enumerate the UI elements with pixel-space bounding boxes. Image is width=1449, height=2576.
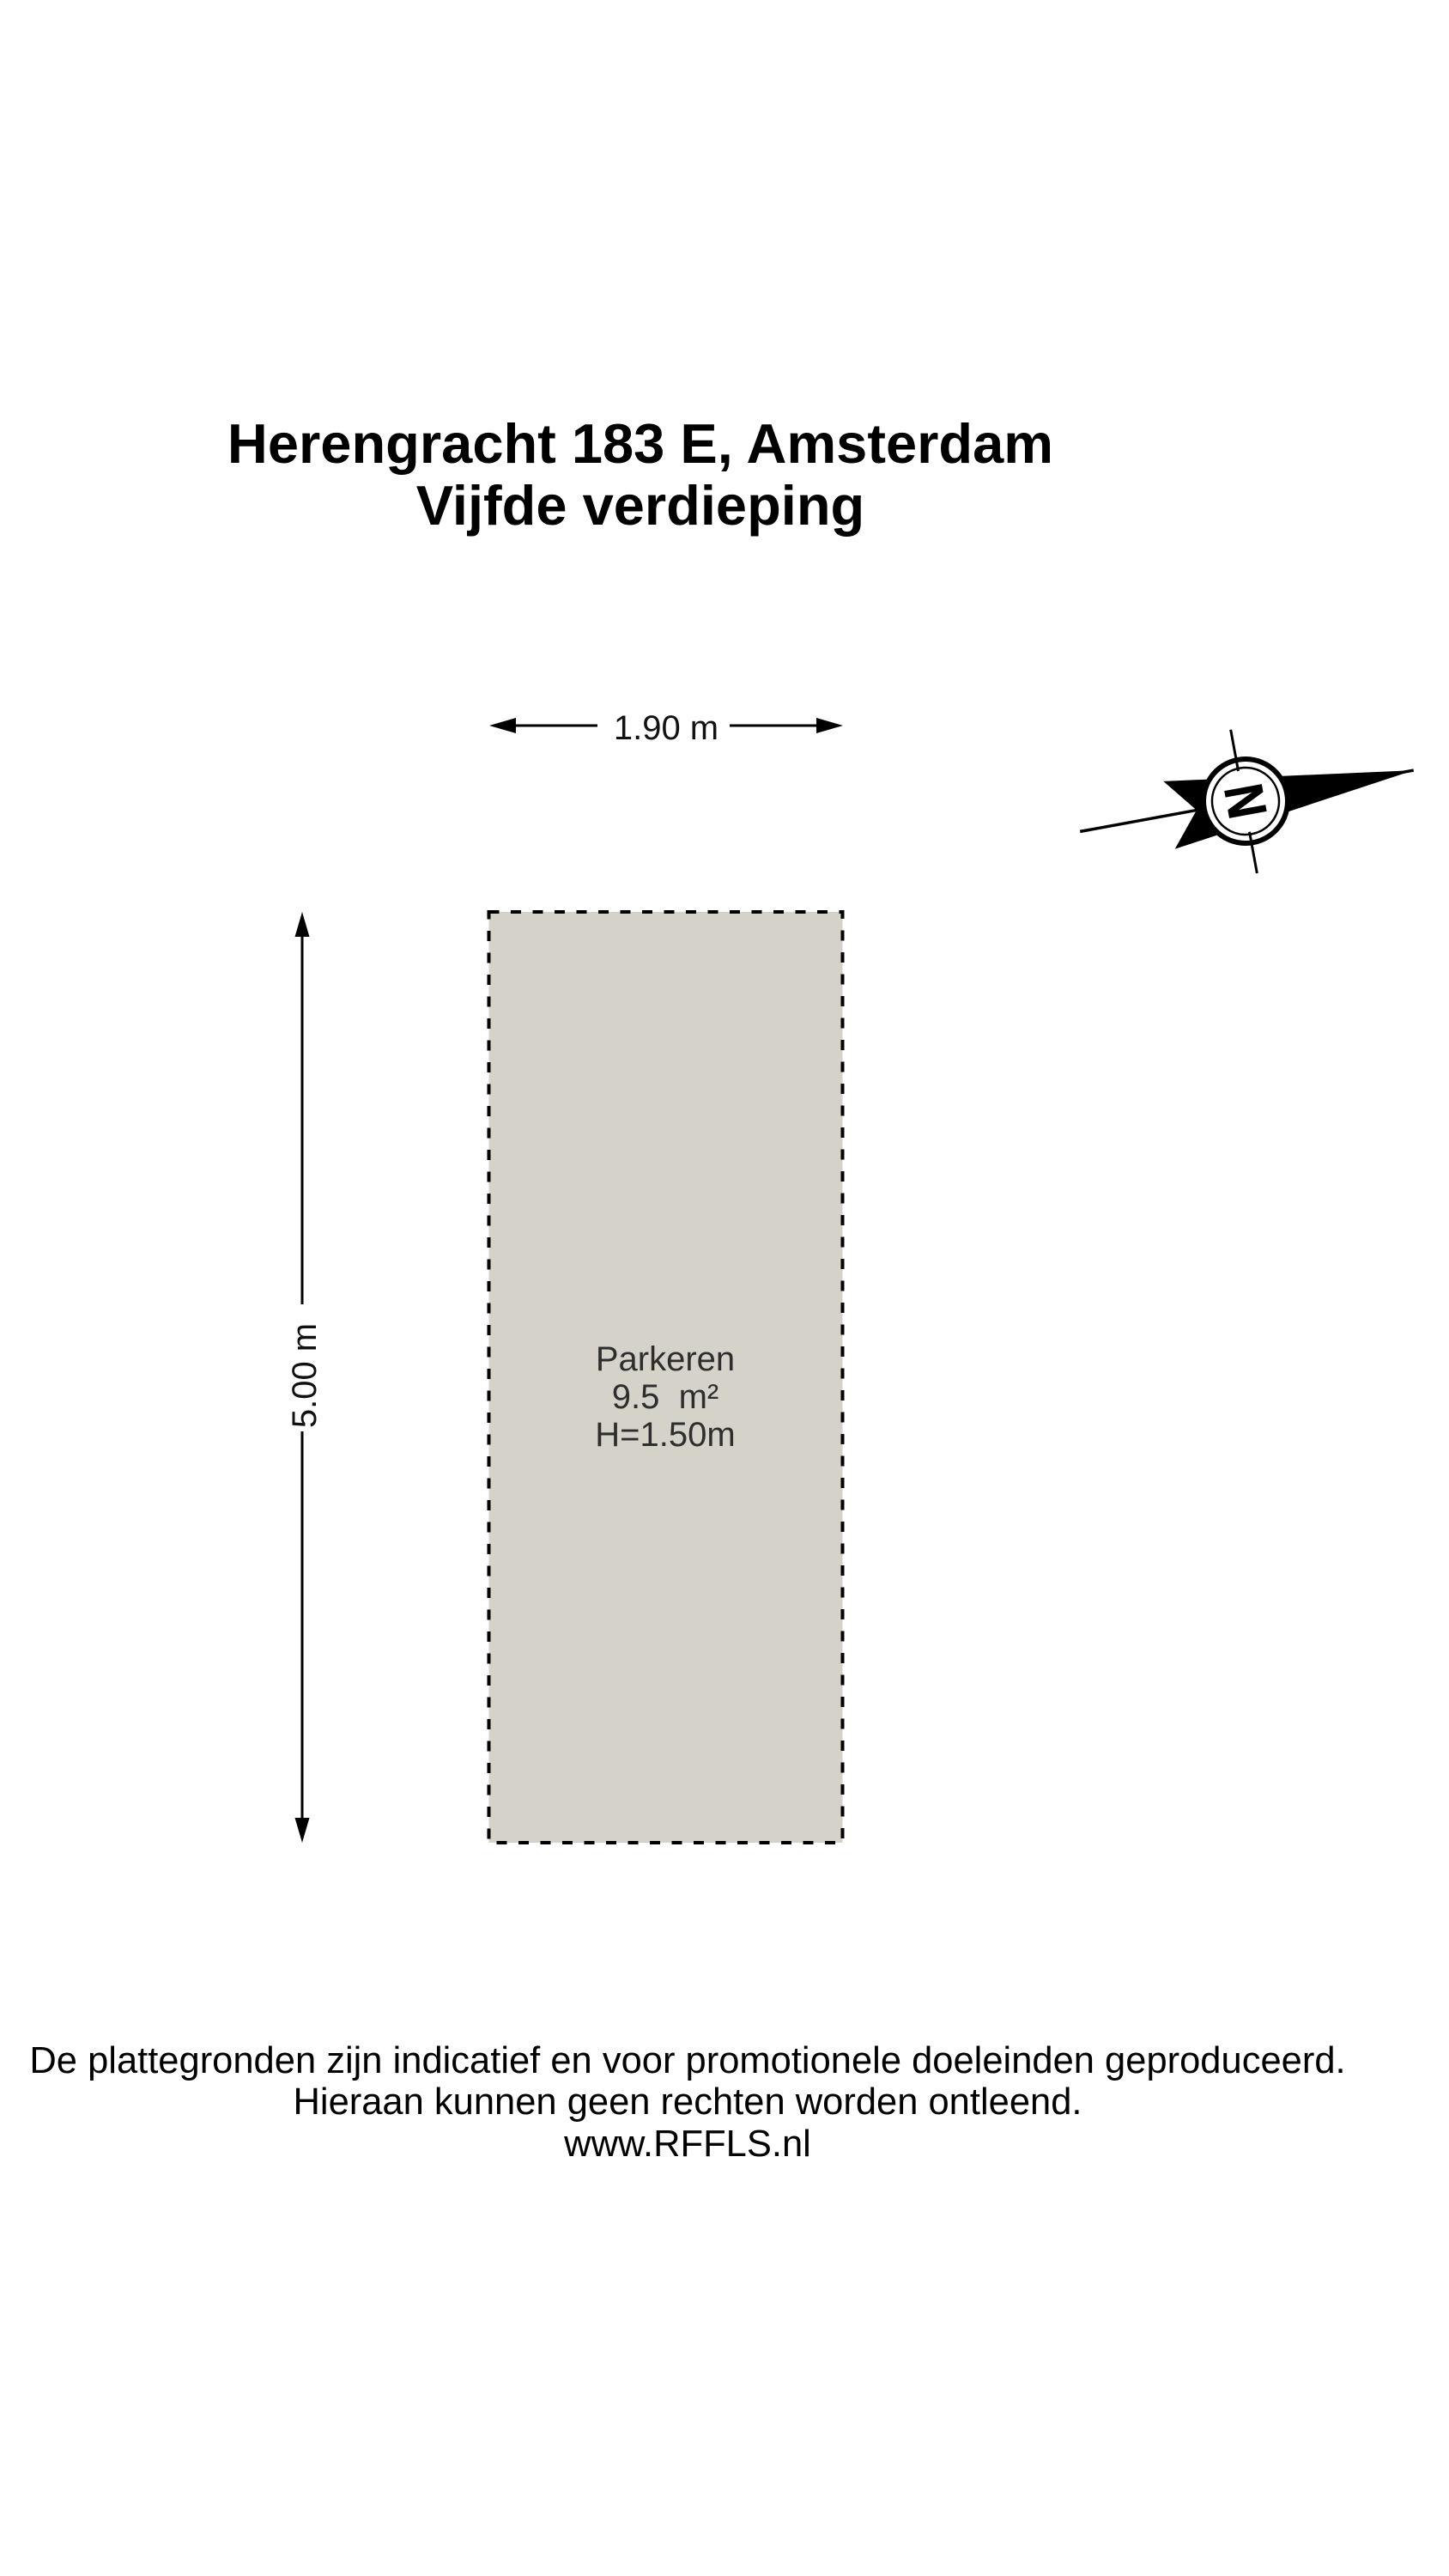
svg-text:1.90 m: 1.90 m: [614, 709, 718, 747]
svg-text:www.RFFLS.nl: www.RFFLS.nl: [563, 2123, 811, 2165]
svg-text:9.5 m²: 9.5 m²: [612, 1378, 718, 1416]
svg-text:De plattegronden zijn indicati: De plattegronden zijn indicatief en voor…: [29, 2040, 1345, 2081]
svg-text:5.00 m: 5.00 m: [286, 1323, 324, 1428]
svg-text:H=1.50m: H=1.50m: [595, 1416, 735, 1454]
svg-text:Vijfde verdieping: Vijfde verdieping: [416, 474, 865, 537]
svg-text:Parkeren: Parkeren: [596, 1340, 735, 1378]
svg-text:Herengracht 183 E, Amsterdam: Herengracht 183 E, Amsterdam: [227, 412, 1053, 475]
svg-text:Hieraan kunnen geen rechten wo: Hieraan kunnen geen rechten worden ontle…: [293, 2081, 1082, 2123]
